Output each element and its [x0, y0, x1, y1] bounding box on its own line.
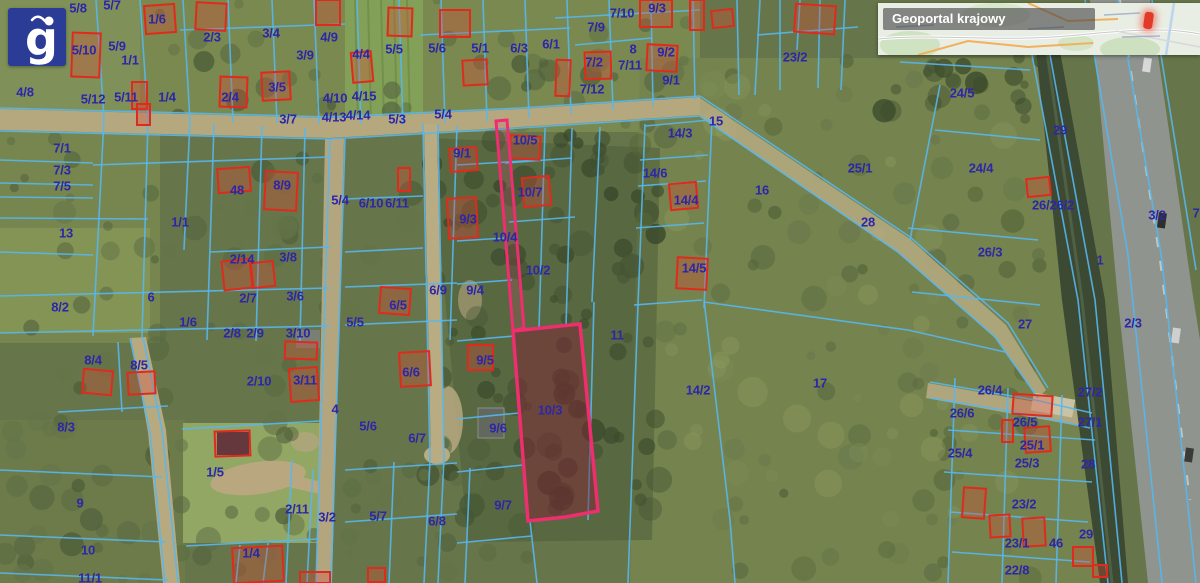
- building-outline: [379, 287, 411, 315]
- building-outline: [1002, 420, 1013, 442]
- building-outline: [399, 351, 431, 387]
- minimap-title: Geoportal krajowy: [883, 8, 1095, 30]
- building-outline: [676, 257, 708, 290]
- building-outline: [351, 51, 374, 83]
- minimap-title-text: Geoportal krajowy: [892, 11, 1005, 26]
- building-outline: [711, 9, 734, 28]
- building-outline: [137, 104, 150, 125]
- building-outline: [1026, 177, 1051, 197]
- map-viewport[interactable]: 5/85/71/62/33/43/94/95/105/91/14/45/125/…: [0, 0, 1200, 583]
- building-outline: [690, 0, 704, 30]
- building-outline: [646, 44, 677, 72]
- building-outline: [368, 568, 385, 582]
- parcel-boundary-line: [0, 218, 148, 219]
- building-outline: [215, 430, 251, 456]
- building-outline: [522, 176, 551, 207]
- geoportal-logo[interactable]: g: [8, 8, 66, 66]
- building-outline: [316, 0, 340, 25]
- building-outline: [555, 60, 570, 96]
- geoportal-g-icon: g: [8, 8, 66, 66]
- building-outline: [222, 259, 253, 291]
- building-outline: [264, 171, 298, 211]
- building-outline: [462, 59, 487, 85]
- building-outline: [71, 33, 101, 78]
- building-outline: [82, 369, 113, 395]
- building-outline: [509, 135, 540, 160]
- building-outline: [232, 546, 284, 583]
- building-outline: [1093, 565, 1107, 577]
- parcel-boundary-line: [0, 197, 93, 198]
- building-outline: [640, 0, 672, 27]
- building-outline: [468, 345, 493, 370]
- building-outline: [251, 261, 275, 288]
- building-outline: [447, 197, 478, 238]
- building-outline: [1012, 394, 1052, 417]
- building-outline: [127, 371, 155, 394]
- building-outline: [669, 182, 698, 210]
- building-outline: [449, 147, 478, 172]
- building-outline: [962, 487, 986, 518]
- building-outline: [585, 52, 612, 80]
- building-outline: [217, 167, 251, 193]
- overview-minimap[interactable]: Geoportal krajowy: [878, 3, 1200, 55]
- building-outline: [300, 572, 330, 583]
- building-outline: [285, 341, 318, 359]
- building-outline: [1073, 547, 1093, 566]
- building-outline: [219, 77, 247, 108]
- building-outline: [1024, 426, 1051, 453]
- building-outline: [398, 168, 410, 191]
- building-outline: [1022, 517, 1045, 546]
- building-outline: [195, 2, 226, 31]
- building-outline: [261, 71, 290, 100]
- building-outline: [144, 4, 176, 34]
- building-outline: [388, 8, 413, 37]
- building-outline: [289, 367, 319, 402]
- building-outline: [794, 4, 836, 35]
- aerial-map[interactable]: [0, 0, 1200, 583]
- building-outline: [440, 10, 470, 37]
- building-outline: [989, 514, 1010, 537]
